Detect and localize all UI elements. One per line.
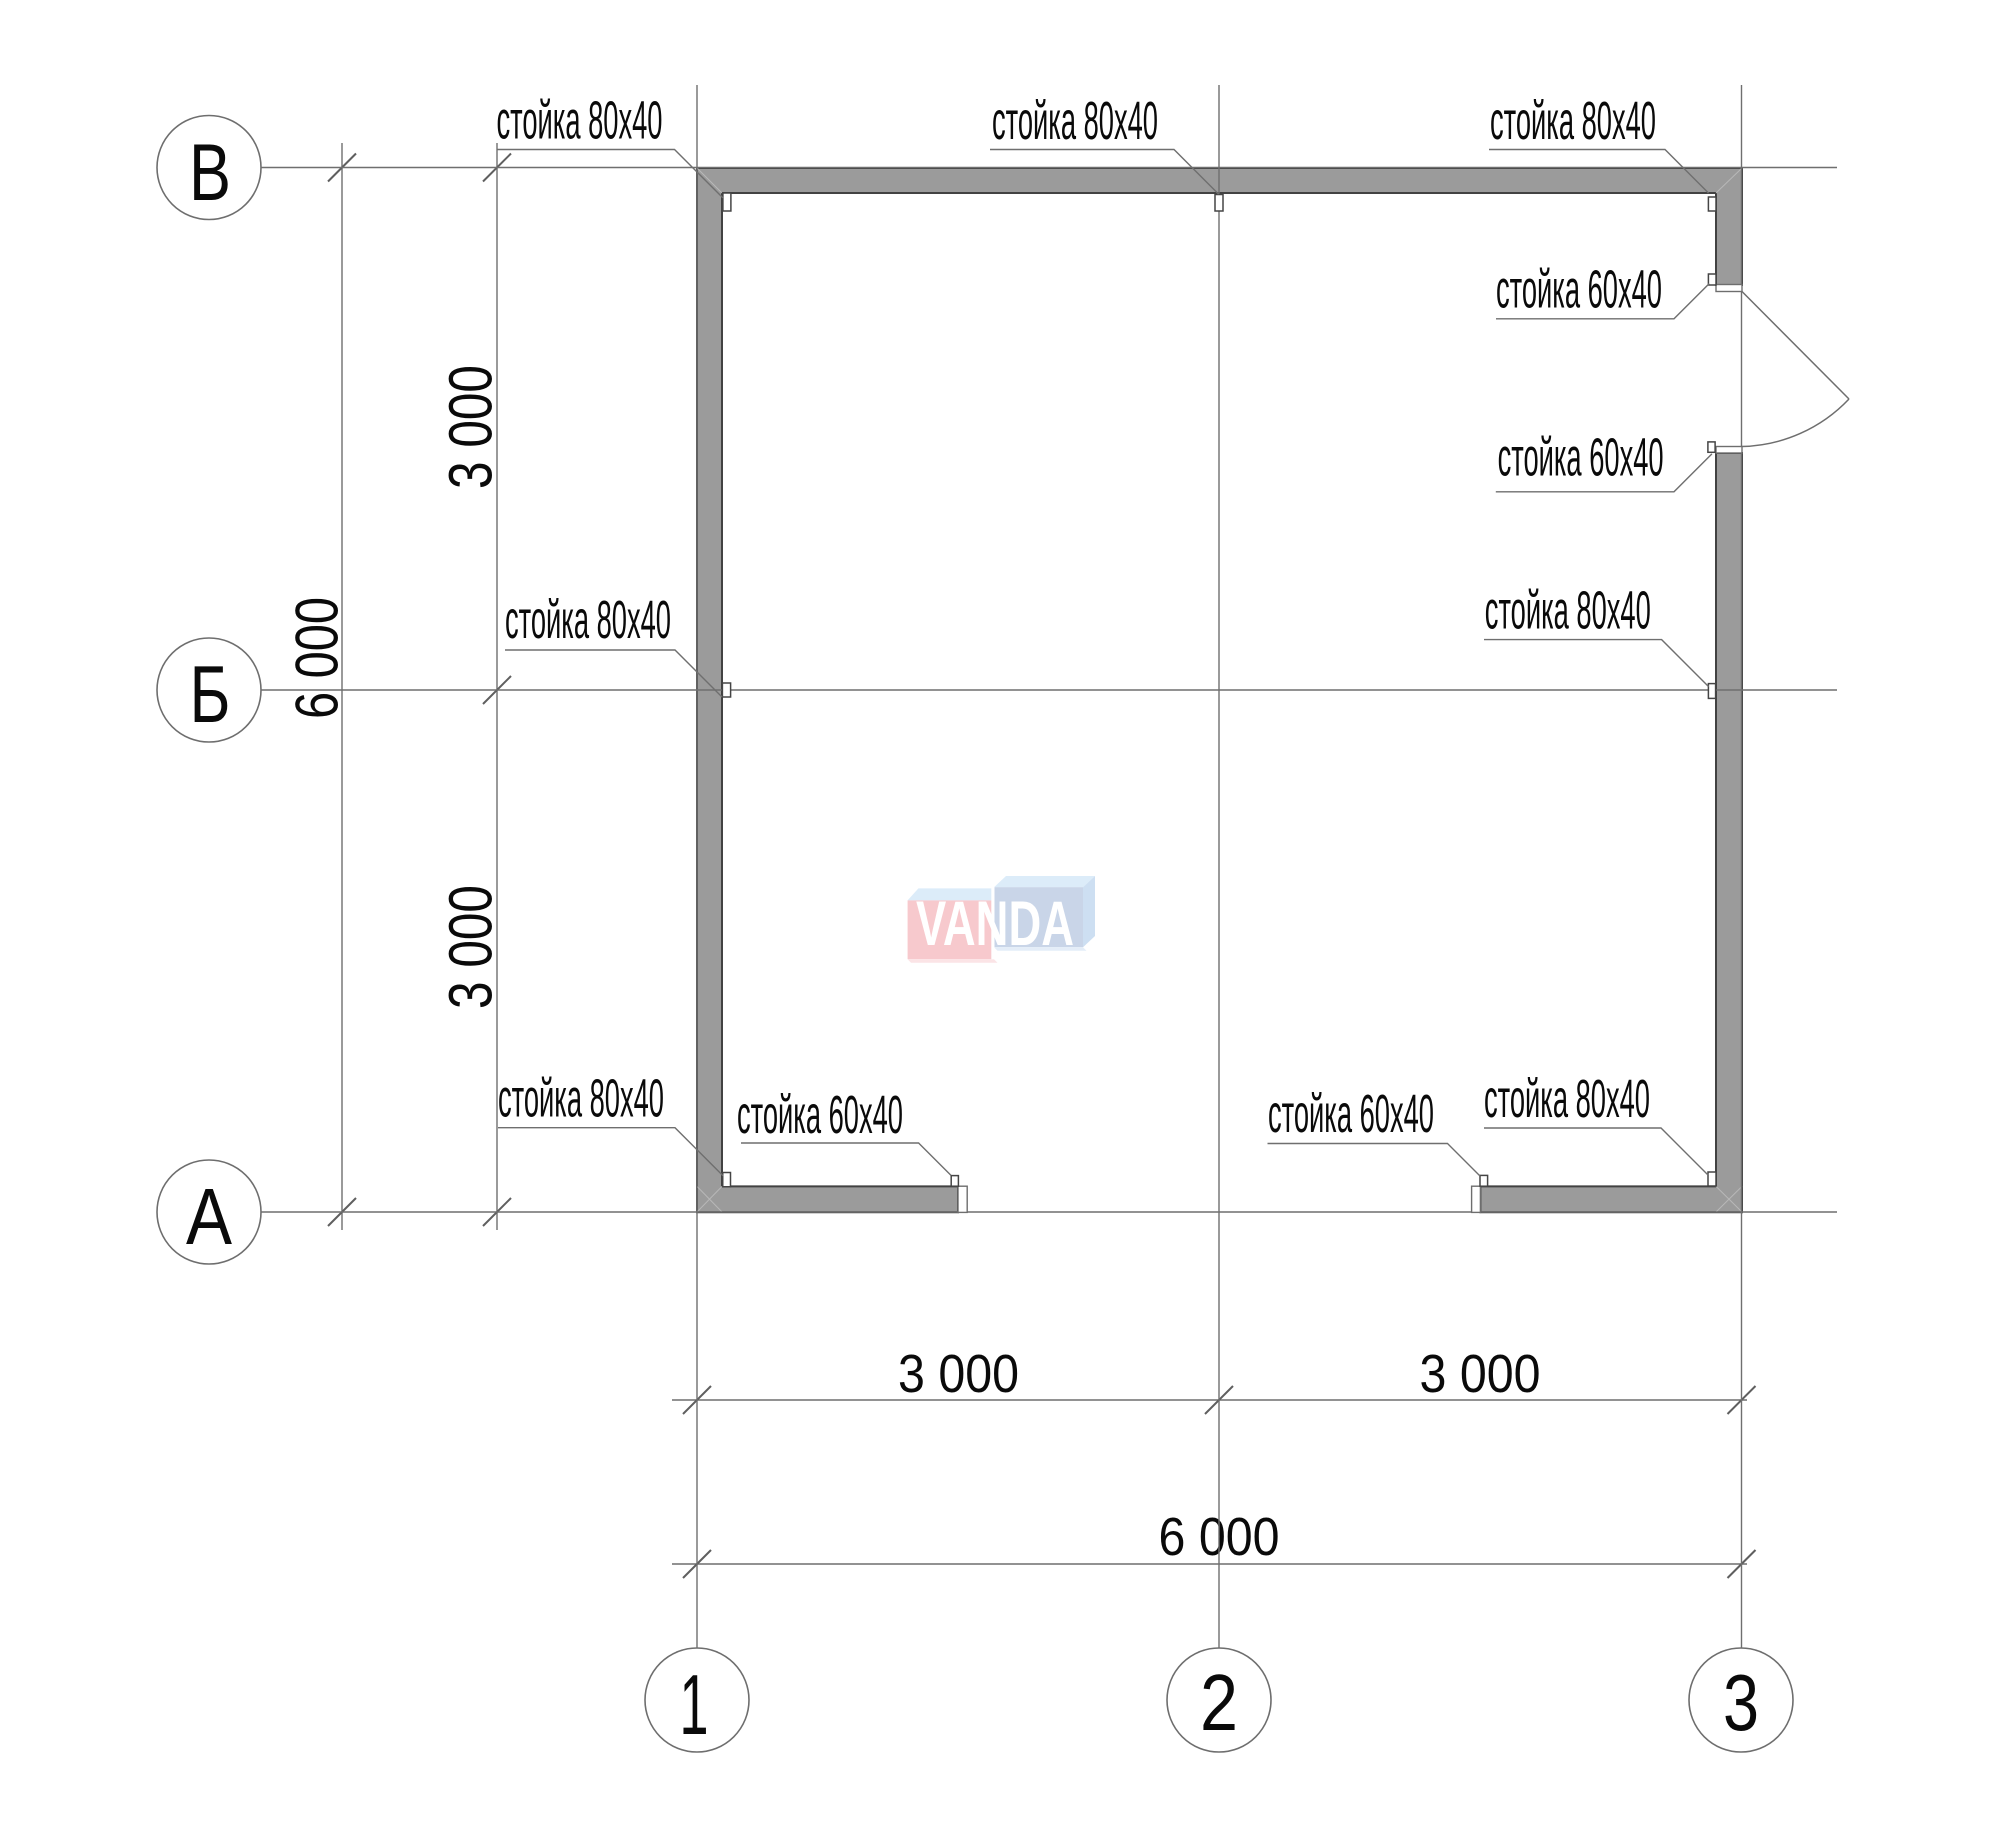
svg-text:стойка 60х40: стойка 60х40 <box>1268 1084 1434 1144</box>
svg-text:стойка 80х40: стойка 80х40 <box>1485 580 1651 640</box>
svg-text:3 000: 3 000 <box>437 365 505 489</box>
svg-text:стойка 80х40: стойка 80х40 <box>498 1069 664 1129</box>
svg-text:В: В <box>189 128 231 218</box>
svg-text:6 000: 6 000 <box>284 597 351 719</box>
svg-text:А: А <box>186 1172 233 1261</box>
svg-text:стойка 60х40: стойка 60х40 <box>737 1085 903 1145</box>
svg-text:стойка 80х40: стойка 80х40 <box>505 590 671 650</box>
svg-text:стойка 80х40: стойка 80х40 <box>1484 1069 1650 1129</box>
svg-text:2: 2 <box>1200 1658 1238 1747</box>
svg-text:3: 3 <box>1723 1658 1759 1747</box>
svg-text:стойка 60х40: стойка 60х40 <box>1496 260 1662 320</box>
svg-text:Б: Б <box>190 650 231 740</box>
svg-text:VANDA: VANDA <box>916 889 1074 959</box>
svg-text:стойка 60х40: стойка 60х40 <box>1498 428 1664 488</box>
svg-text:1: 1 <box>680 1658 709 1753</box>
svg-text:3 000: 3 000 <box>437 885 505 1009</box>
svg-text:стойка 80х40: стойка 80х40 <box>992 91 1158 151</box>
svg-text:стойка 80х40: стойка 80х40 <box>497 91 663 151</box>
svg-text:3 000: 3 000 <box>1420 1345 1541 1404</box>
svg-text:3 000: 3 000 <box>898 1345 1019 1404</box>
svg-text:стойка 80х40: стойка 80х40 <box>1490 91 1656 151</box>
